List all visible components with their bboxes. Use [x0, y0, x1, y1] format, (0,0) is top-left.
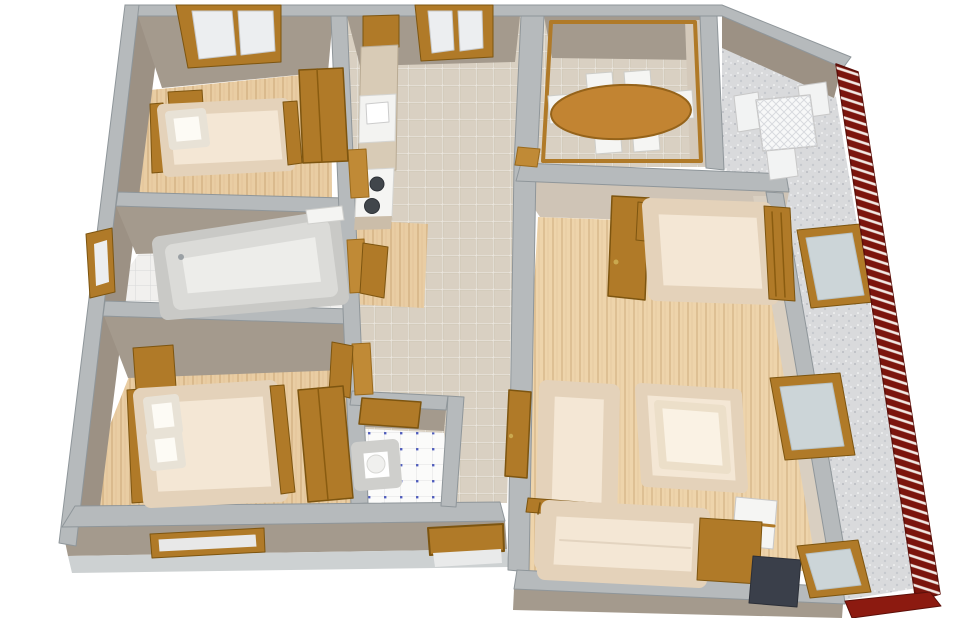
wc-door-leaf: [359, 398, 421, 428]
dining-door-threshold: [515, 147, 540, 167]
glass-table-mid-top: [780, 383, 844, 450]
bedroom2-nightstand: [133, 345, 176, 390]
bathroom-door-leaf: [360, 243, 388, 298]
bedroom1-window-glass-left: [192, 11, 236, 59]
dark-bin: [749, 556, 801, 607]
kitchen-sink-basin: [366, 102, 389, 124]
living-armchair-seat: [658, 404, 727, 470]
floor-plan-canvas: [0, 0, 960, 618]
sofabed-lattice: [764, 206, 795, 301]
sofabed-mattress: [650, 206, 771, 297]
hall-window-glass-left: [428, 11, 454, 53]
bedroom1-bed-pillow: [169, 112, 206, 146]
bedroom1-window-glass-right: [238, 11, 275, 55]
living-north-door-knob: [614, 260, 619, 265]
bathroom-window-glass: [94, 240, 109, 286]
bedroom1-door-threshold: [348, 149, 369, 198]
living-west-door: [505, 390, 531, 478]
bedroom2-pillow-top: [147, 398, 179, 433]
stove-burner-1: [370, 177, 384, 191]
bedroom2-dresser: [298, 386, 353, 502]
kitchen-tall-cabinet: [363, 15, 399, 49]
floor-plan-page: [0, 0, 960, 618]
bedroom2-pillow-bottom: [150, 433, 182, 467]
living-west-door-knob: [509, 434, 513, 438]
balcony-table-texture: [756, 95, 817, 151]
bathtub-faucet: [178, 254, 184, 260]
hall-window-glass-right: [458, 11, 483, 51]
bedroom1-wardrobe: [299, 68, 348, 163]
bedroom2-door-threshold: [352, 343, 373, 395]
kitchen-counter-end: [354, 216, 392, 230]
stove-burner-2: [365, 199, 380, 214]
wc-sink-basin: [367, 455, 385, 473]
